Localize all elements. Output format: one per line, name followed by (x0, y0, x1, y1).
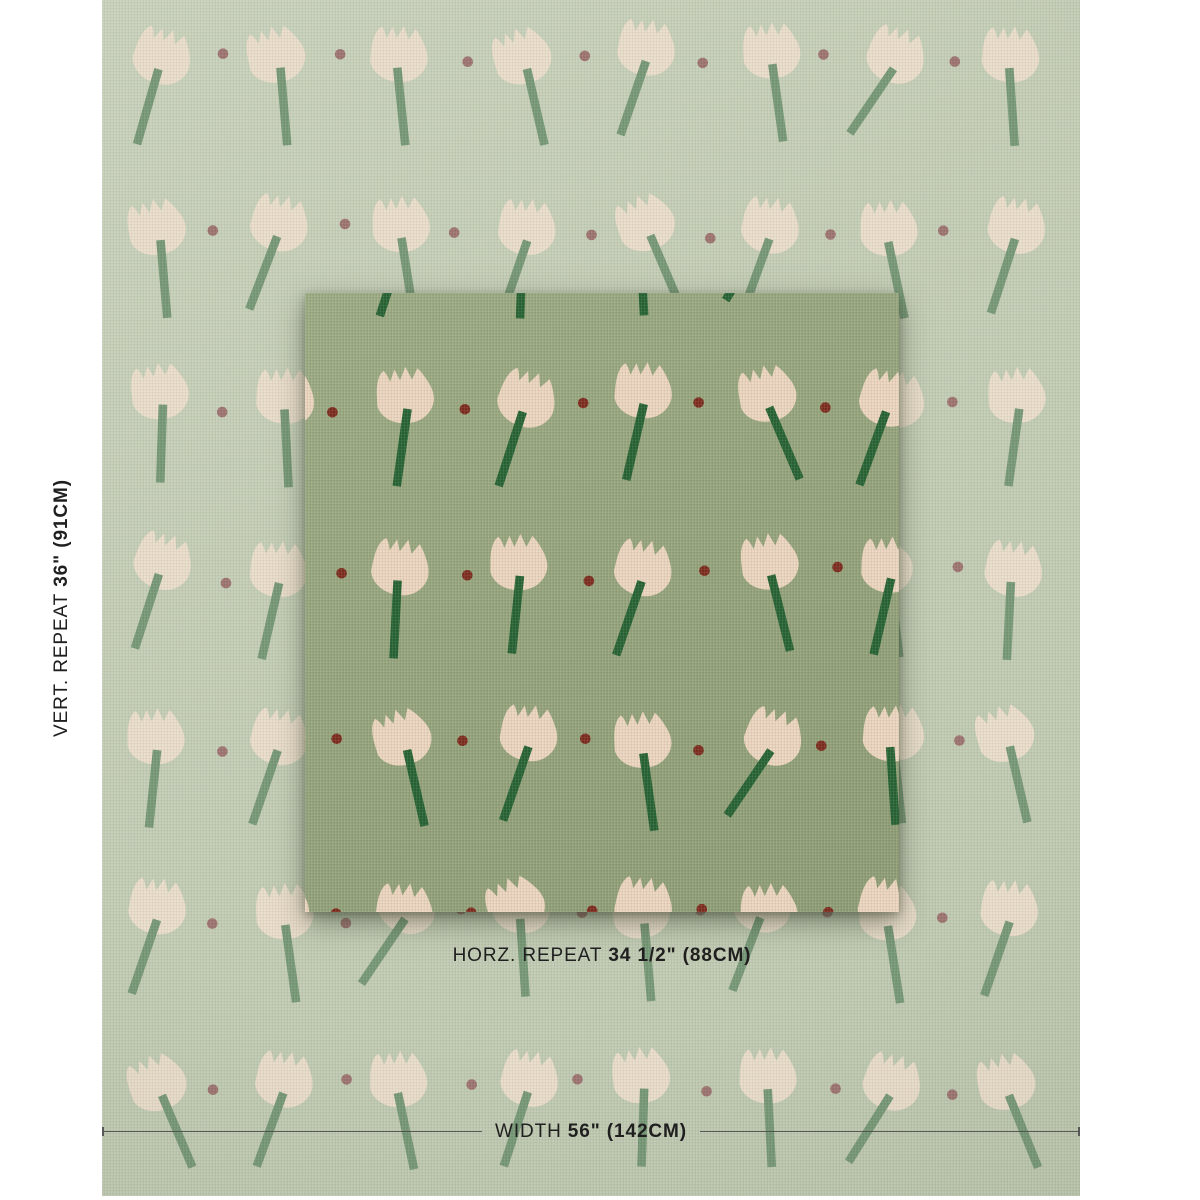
fabric-spec-sheet: VERT. REPEAT36" (91CM) HORZ. REPEAT34 1/… (0, 0, 1200, 1200)
width-text: WIDTH (495, 1121, 562, 1142)
vertical-repeat-text: VERT. REPEAT (51, 593, 72, 737)
vertical-repeat-label: VERT. REPEAT36" (91CM) (51, 458, 75, 758)
width-measure: WIDTH56" (142CM) (102, 1122, 1080, 1141)
fabric-closeup-swatch (305, 293, 899, 912)
horizontal-repeat-text: HORZ. REPEAT (453, 945, 603, 966)
tulip-pattern-closeup (305, 293, 899, 912)
measure-line-right (700, 1131, 1078, 1133)
horizontal-repeat-label: HORZ. REPEAT34 1/2" (88CM) (302, 945, 902, 967)
horizontal-repeat-value: 34 1/2" (88CM) (608, 945, 751, 966)
width-label: WIDTH56" (142CM) (495, 1121, 687, 1143)
width-value: 56" (142CM) (568, 1121, 687, 1142)
measure-line-left (104, 1131, 482, 1133)
fabric-full-width-view (102, 0, 1080, 1196)
vertical-repeat-value: 36" (91CM) (51, 479, 72, 587)
measure-tick-right (1078, 1127, 1080, 1136)
